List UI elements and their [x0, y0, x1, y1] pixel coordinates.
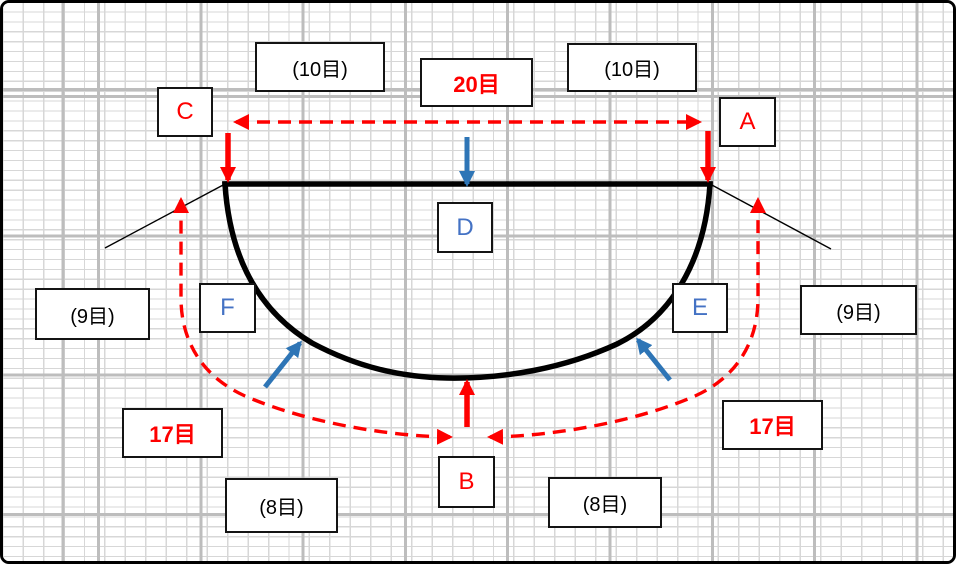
label-box-point-e: E [672, 283, 728, 333]
label-box-right-side-count: (9目) [800, 285, 917, 335]
label-box-left-curve-count: 17目 [122, 408, 223, 458]
label-box-point-c: C [157, 87, 213, 137]
label-box-top-left-count: (10目) [255, 42, 385, 92]
label-box-point-b: B [438, 456, 495, 508]
label-box-point-d: D [437, 202, 493, 253]
label-box-point-f: F [199, 283, 256, 333]
label-box-bottom-right-count: (8目) [548, 477, 662, 528]
label-box-top-right-count: (10目) [567, 43, 697, 92]
point-f-arrow [265, 343, 300, 387]
grid-background: (10目) 20目 (10目) C A D F E B (9目) (9目) 17… [0, 0, 956, 564]
left-flare-line [105, 184, 225, 248]
label-box-right-curve-count: 17目 [722, 400, 823, 450]
point-e-arrow [638, 340, 670, 380]
label-box-point-a: A [719, 97, 776, 147]
label-box-bottom-left-count: (8目) [225, 478, 338, 533]
label-box-left-side-count: (9目) [35, 288, 150, 340]
label-box-top-width-count: 20目 [420, 58, 533, 107]
right-flare-line [710, 184, 831, 249]
diagram-canvas: (10目) 20目 (10目) C A D F E B (9目) (9目) 17… [0, 0, 956, 564]
